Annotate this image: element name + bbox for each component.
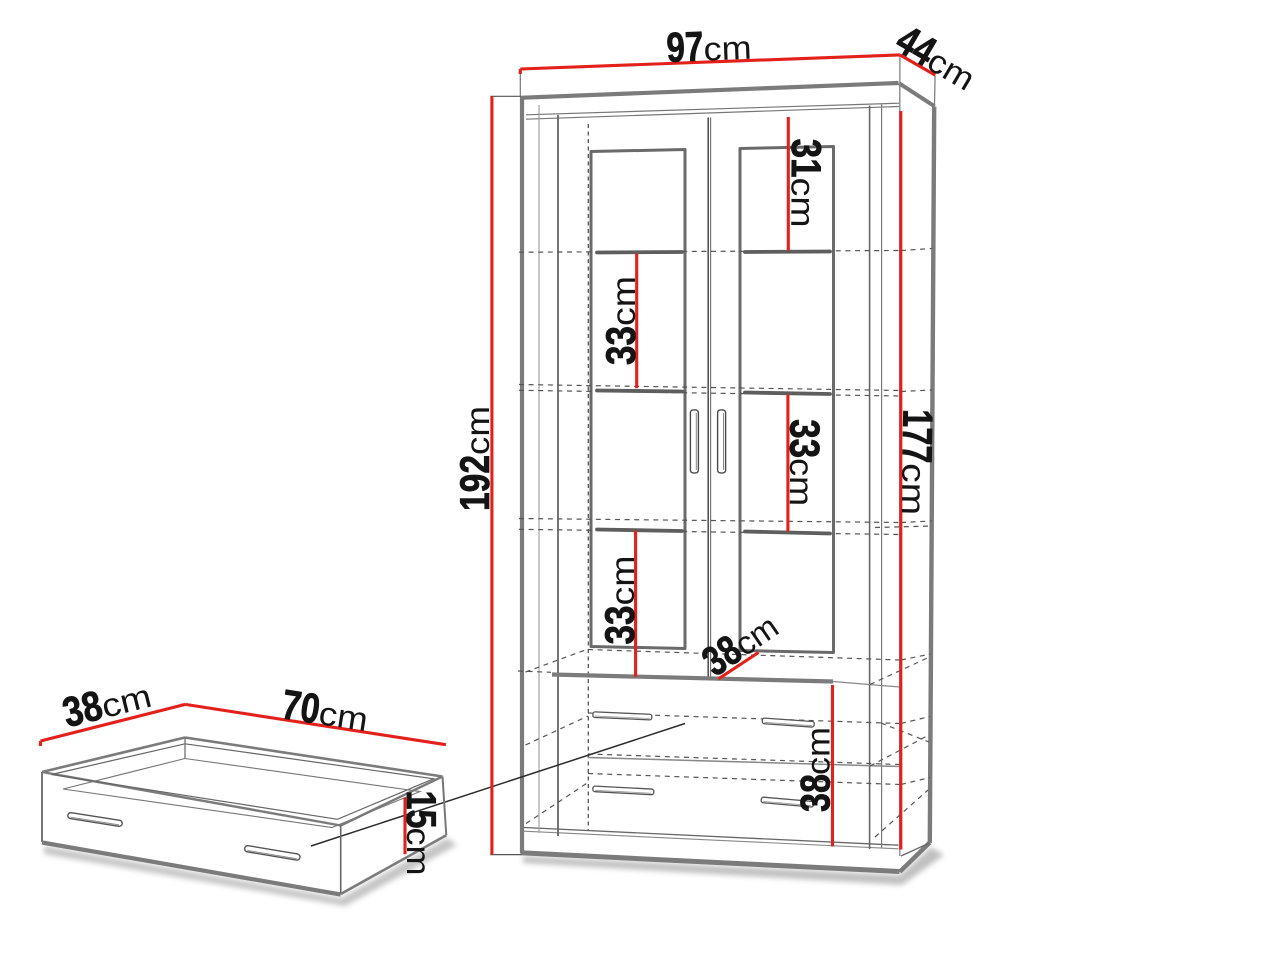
svg-text:97: 97 <box>666 23 705 71</box>
svg-text:cm: cm <box>784 177 821 227</box>
svg-text:177: 177 <box>894 409 942 464</box>
svg-text:38: 38 <box>792 774 839 812</box>
svg-text:33: 33 <box>597 326 644 365</box>
svg-text:cm: cm <box>459 406 496 455</box>
svg-text:33: 33 <box>781 419 828 458</box>
svg-text:cm: cm <box>703 29 752 68</box>
svg-text:192: 192 <box>451 455 498 511</box>
svg-text:cm: cm <box>400 828 437 876</box>
svg-text:cm: cm <box>895 463 933 516</box>
svg-text:cm: cm <box>605 276 642 326</box>
svg-text:15: 15 <box>398 791 445 829</box>
svg-text:31: 31 <box>783 138 830 177</box>
svg-text:33: 33 <box>596 606 643 645</box>
svg-text:cm: cm <box>800 727 837 775</box>
svg-text:cm: cm <box>316 694 370 738</box>
svg-text:cm: cm <box>604 556 641 606</box>
svg-text:cm: cm <box>783 458 820 506</box>
